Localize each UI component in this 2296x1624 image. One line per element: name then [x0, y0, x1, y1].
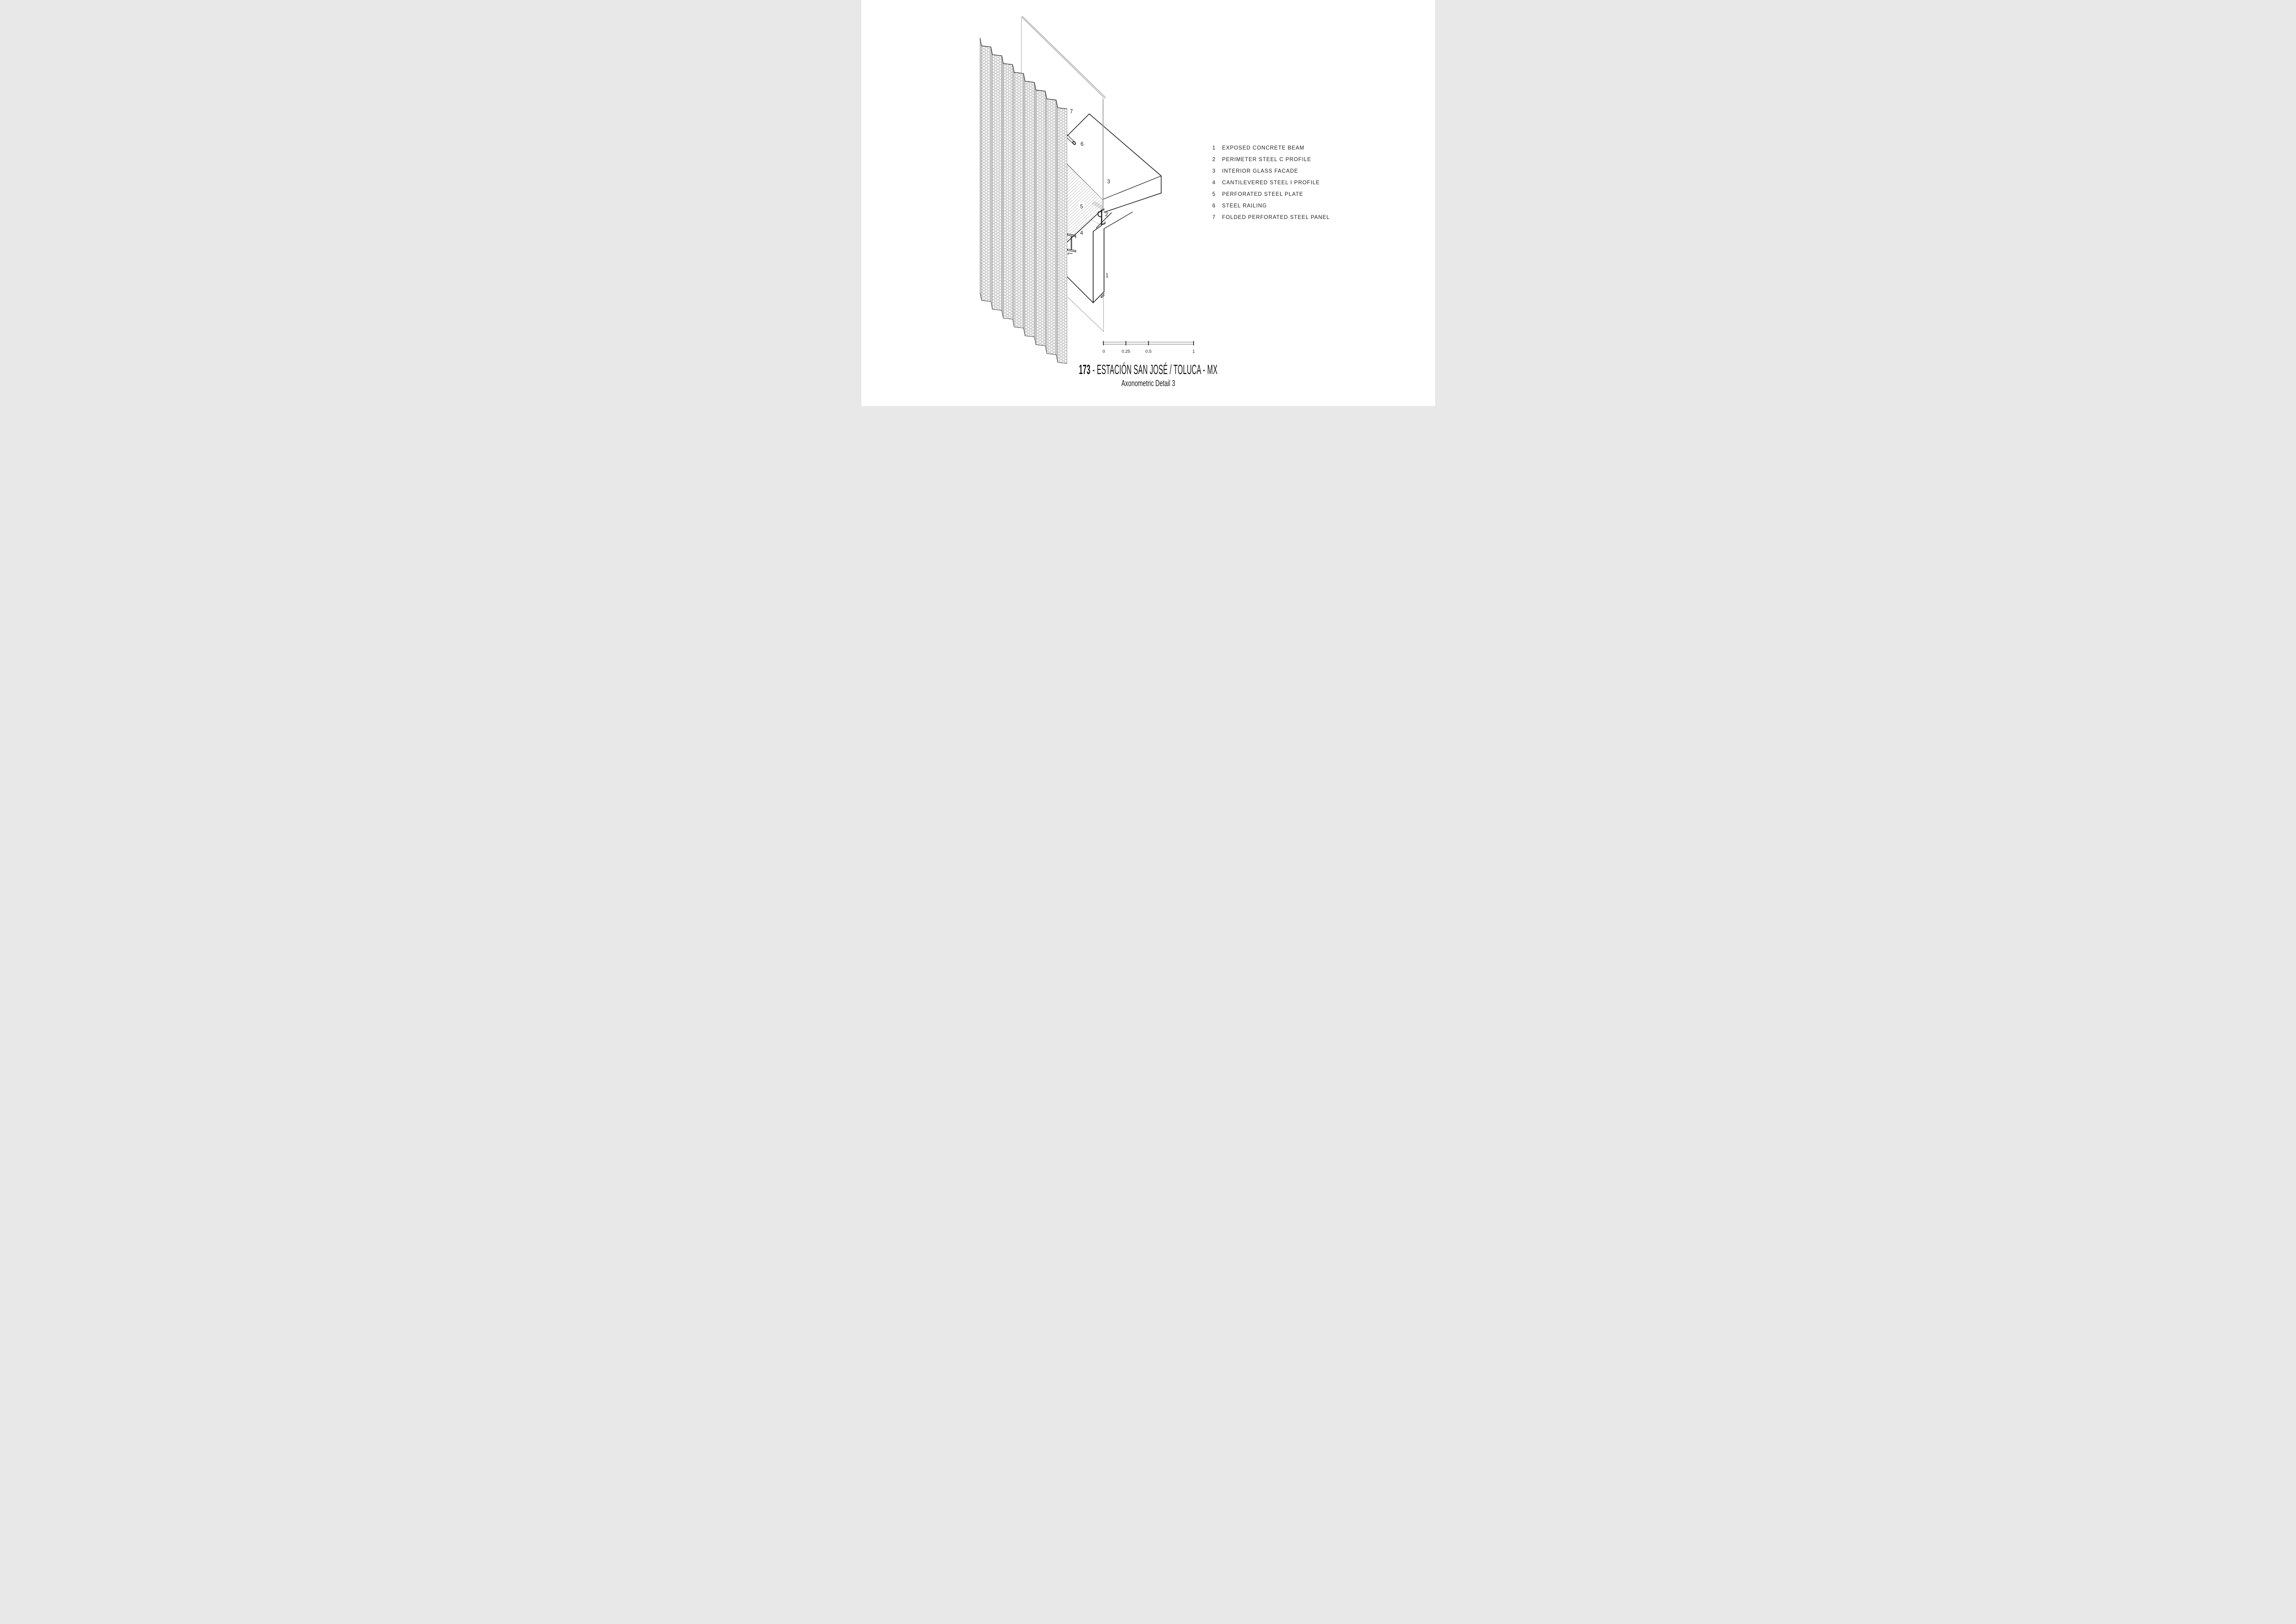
legend: 1 EXPOSED CONCRETE BEAM 2 PERIMETER STEE… [1213, 142, 1330, 224]
perforated-steel-plate-walkway [1067, 164, 1102, 243]
callout-6: 6 [1080, 142, 1083, 147]
scale-bar: 0 0.25 0.5 1 [1102, 341, 1195, 355]
legend-item-number: 6 [1213, 203, 1222, 209]
folded-perforated-steel-panel [980, 38, 1067, 363]
drawing-title: 173- ESTACIÓN SAN JOSÉ / TOLUCA - MX [1005, 362, 1292, 378]
axonometric-detail-drawing: 7 6 3 5 2 4 1 0 0.25 0.5 1 [861, 0, 1435, 406]
legend-item-label: FOLDED PERFORATED STEEL PANEL [1222, 215, 1330, 220]
callout-5: 5 [1080, 204, 1083, 210]
legend-item: 2 PERIMETER STEEL C PROFILE [1213, 154, 1330, 165]
legend-item-label: PERFORATED STEEL PLATE [1222, 192, 1304, 197]
scale-label-0: 0 [1102, 349, 1105, 354]
legend-item: 7 FOLDED PERFORATED STEEL PANEL [1213, 212, 1330, 224]
legend-item-label: STEEL RAILING [1222, 203, 1267, 209]
callout-2: 2 [1105, 212, 1108, 218]
legend-item-number: 3 [1213, 169, 1222, 174]
legend-item-label: INTERIOR GLASS FACADE [1222, 169, 1299, 174]
scale-label-1: 1 [1192, 349, 1195, 354]
callout-3: 3 [1107, 179, 1110, 185]
title-block: 173- ESTACIÓN SAN JOSÉ / TOLUCA - MX Axo… [861, 362, 1435, 388]
legend-item-label: PERIMETER STEEL C PROFILE [1222, 157, 1312, 162]
callout-4: 4 [1080, 231, 1083, 236]
legend-item: 6 STEEL RAILING [1213, 200, 1330, 212]
legend-item-number: 2 [1213, 157, 1222, 162]
scale-label-05: 0.5 [1145, 349, 1151, 354]
drawing-title-text: - ESTACIÓN SAN JOSÉ / TOLUCA - MX [1092, 362, 1217, 377]
legend-item-label: EXPOSED CONCRETE BEAM [1222, 145, 1305, 151]
drawing-subtitle: Axonometric Detail 3 [947, 379, 1349, 388]
legend-item-label: CANTILEVERED STEEL I PROFILE [1222, 180, 1320, 186]
legend-item-number: 1 [1213, 145, 1222, 151]
legend-item-number: 4 [1213, 180, 1222, 186]
legend-item-number: 5 [1213, 192, 1222, 197]
legend-item: 1 EXPOSED CONCRETE BEAM [1213, 142, 1330, 154]
legend-item: 3 INTERIOR GLASS FACADE [1213, 165, 1330, 177]
legend-item-number: 7 [1213, 215, 1222, 220]
cantilevered-steel-i-profile [1067, 234, 1104, 298]
drawing-sheet: 7 6 3 5 2 4 1 0 0.25 0.5 1 [861, 0, 1435, 406]
railing-end-cap [1072, 141, 1076, 145]
callout-7: 7 [1070, 109, 1072, 115]
legend-item: 4 CANTILEVERED STEEL I PROFILE [1213, 177, 1330, 188]
callout-1: 1 [1105, 273, 1108, 279]
legend-item: 5 PERFORATED STEEL PLATE [1213, 188, 1330, 200]
scale-label-025: 0.25 [1121, 349, 1130, 354]
drawing-number: 173 [1079, 362, 1090, 377]
